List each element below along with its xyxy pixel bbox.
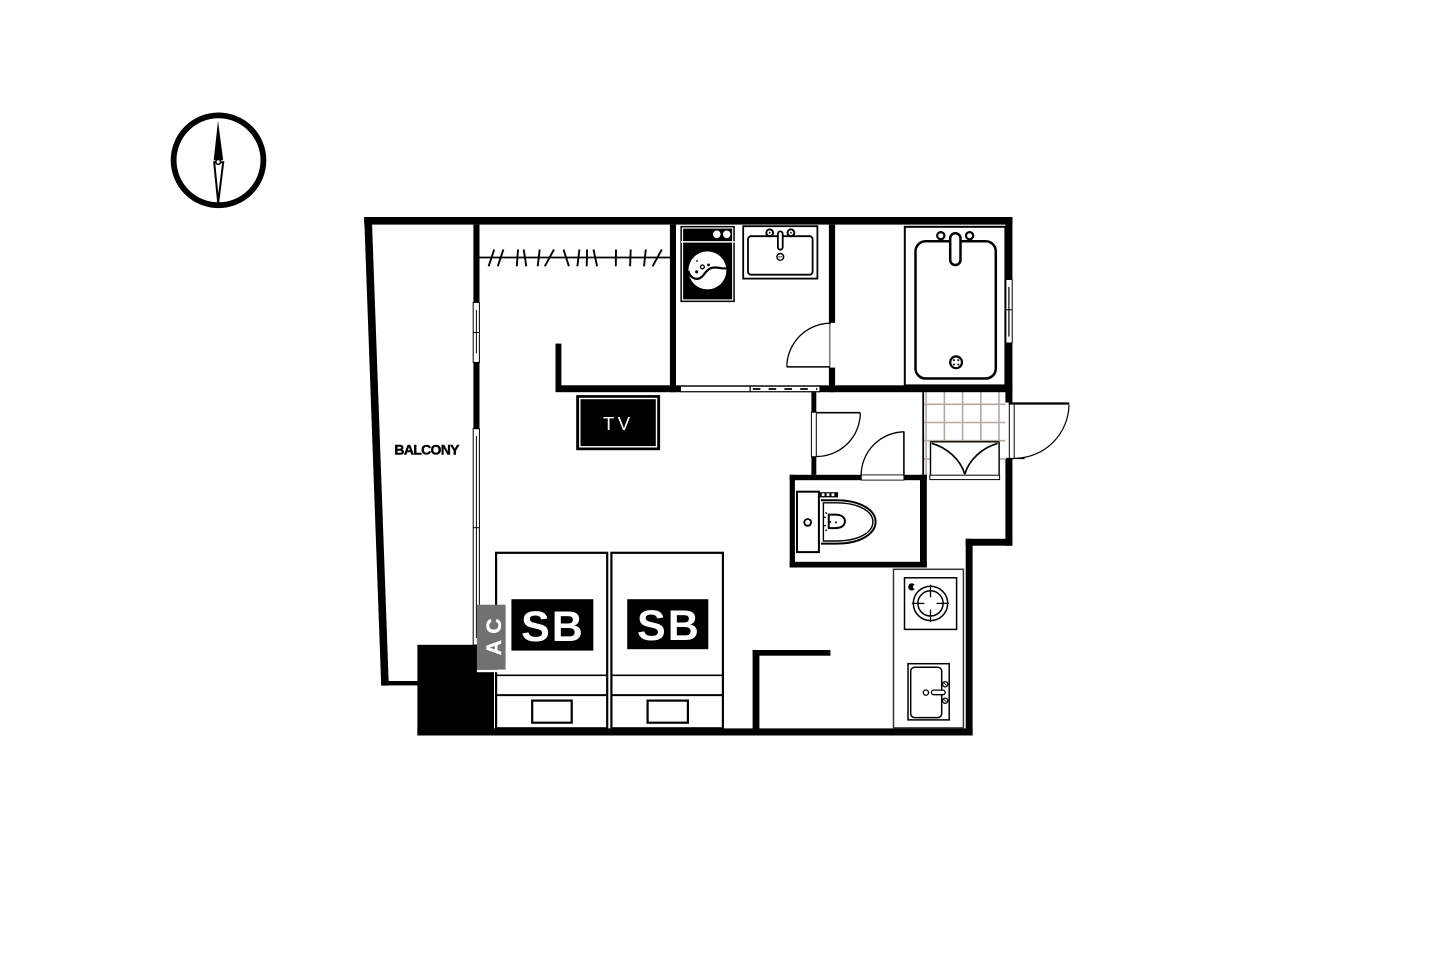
svg-text:SB: SB (521, 603, 585, 651)
svg-text:AC: AC (483, 612, 506, 655)
svg-text:BALCONY: BALCONY (394, 441, 460, 457)
svg-text:SB: SB (637, 602, 701, 650)
svg-text:TV: TV (603, 413, 634, 434)
